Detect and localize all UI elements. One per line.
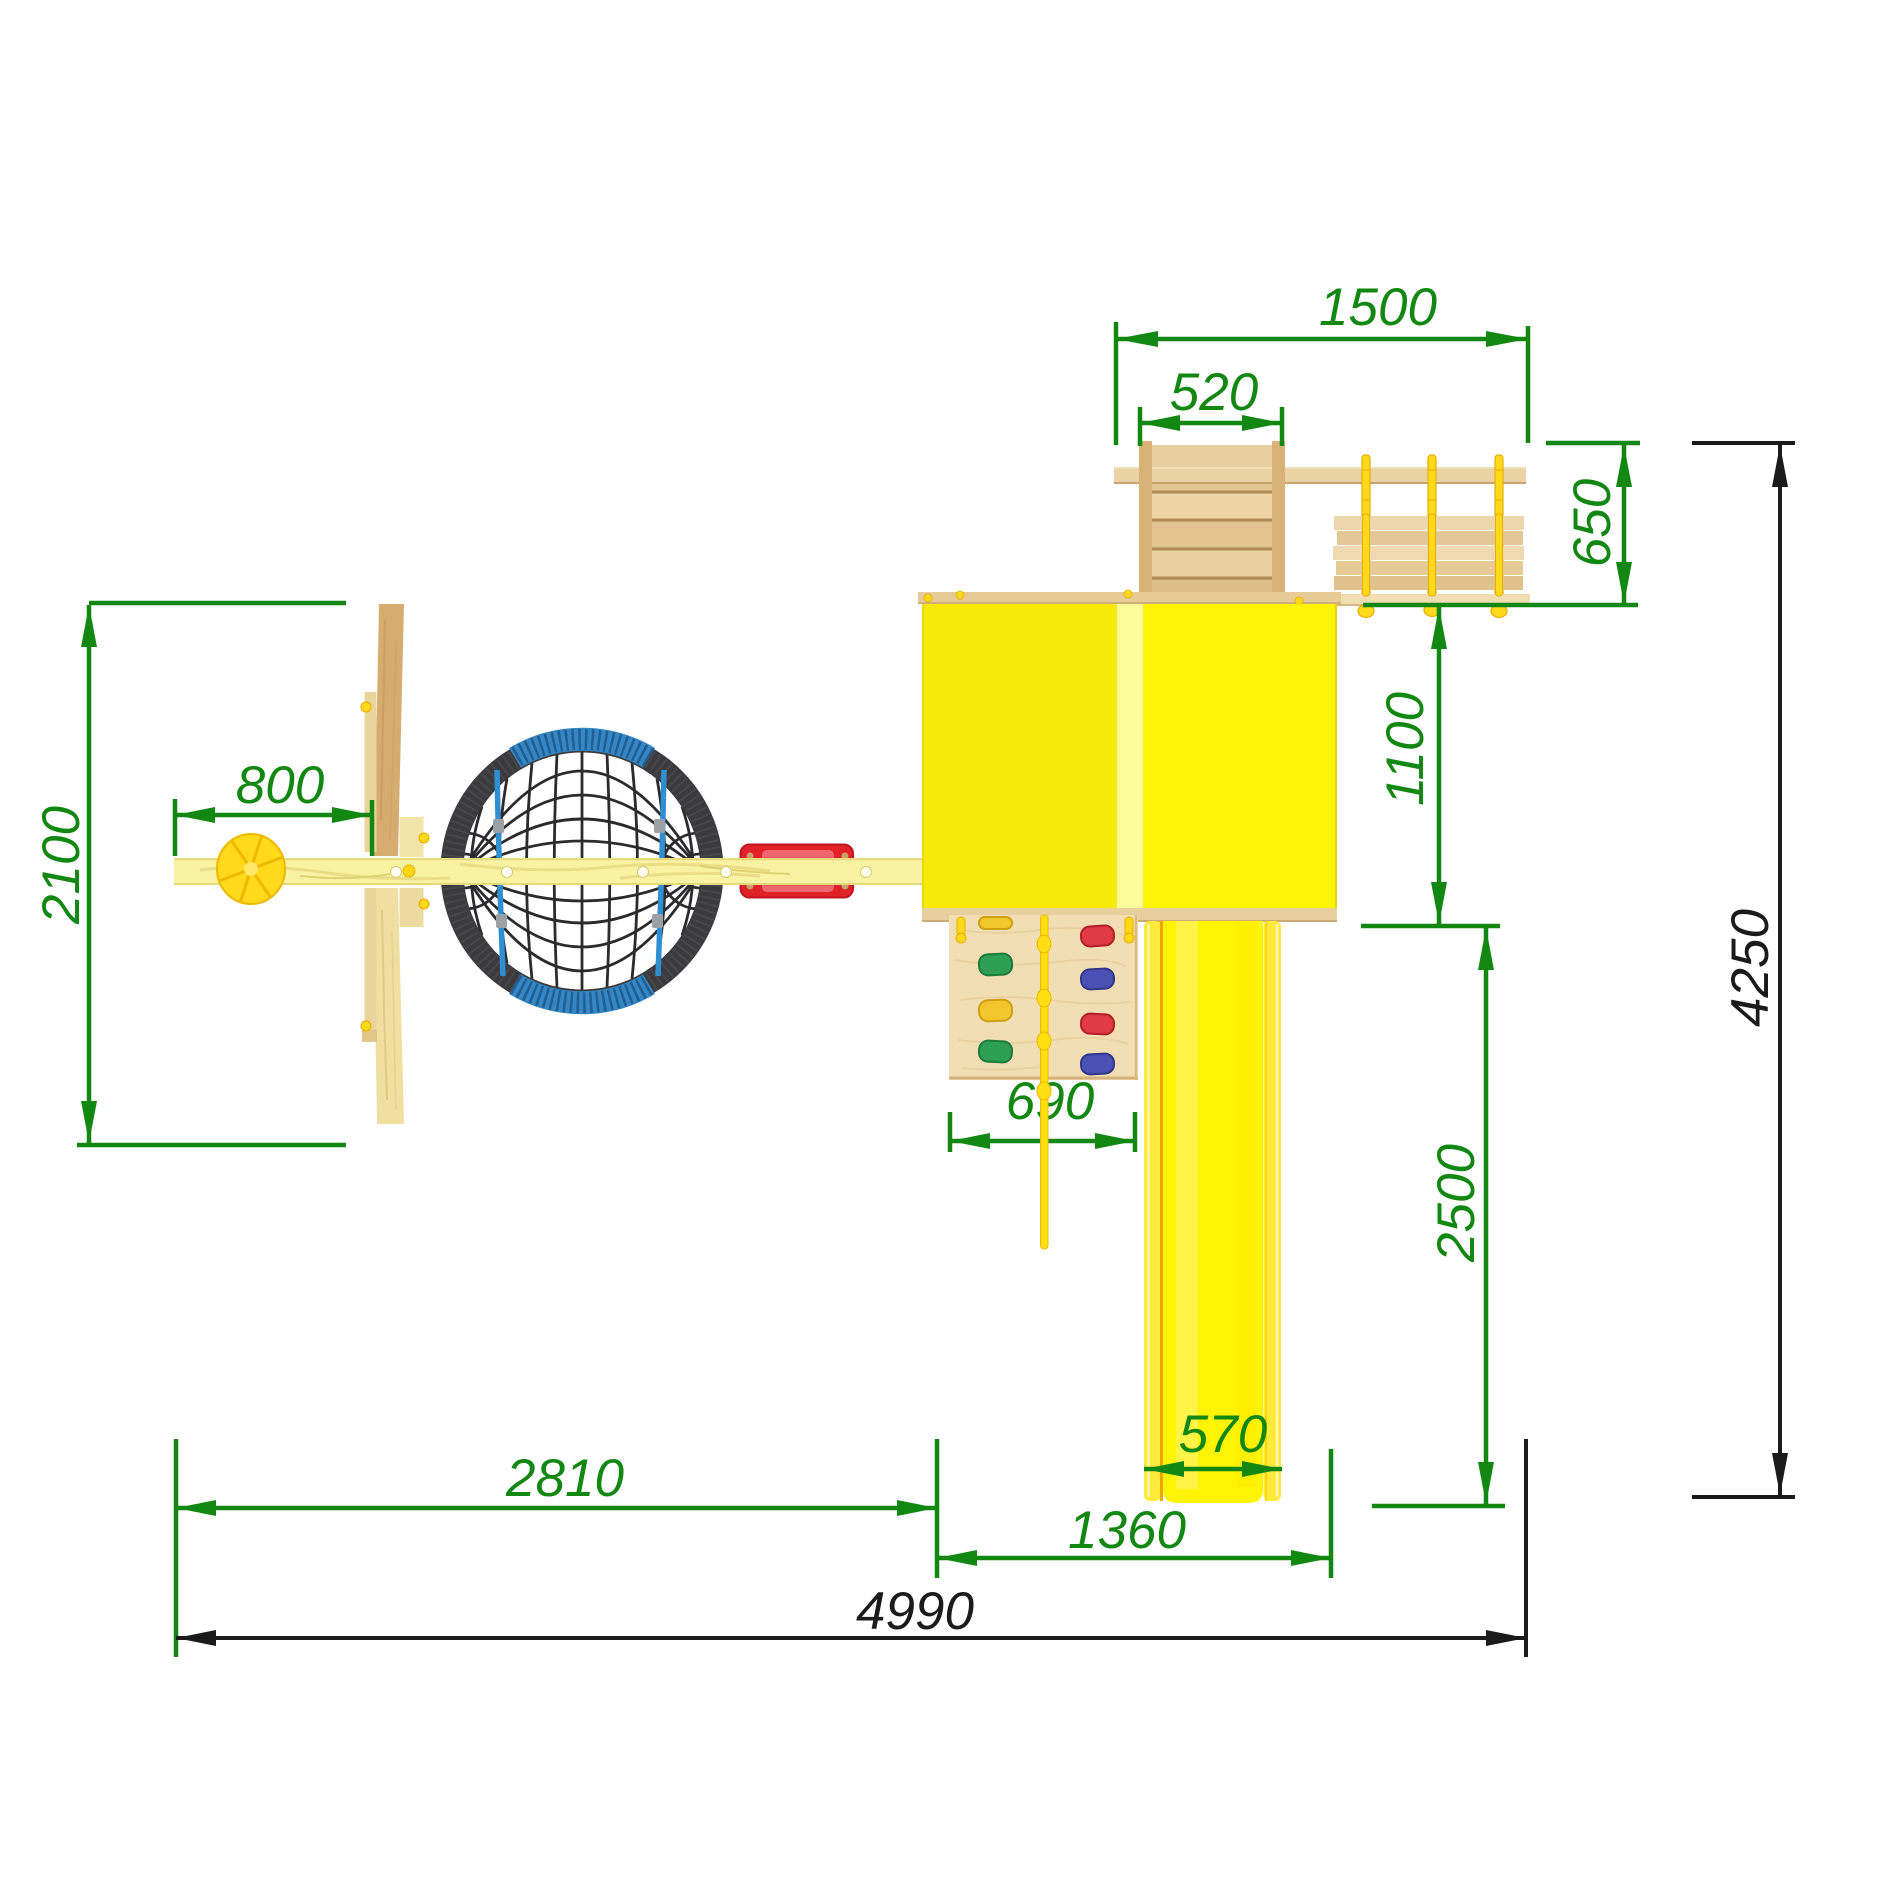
svg-text:2100: 2100 [32, 806, 91, 925]
svg-text:4990: 4990 [856, 1582, 974, 1641]
svg-text:4250: 4250 [1721, 909, 1780, 1027]
svg-text:520: 520 [1170, 363, 1259, 422]
svg-text:1500: 1500 [1319, 278, 1437, 337]
svg-text:800: 800 [236, 756, 325, 815]
svg-text:690: 690 [1006, 1072, 1095, 1131]
svg-text:650: 650 [1563, 478, 1622, 567]
svg-text:2500: 2500 [1427, 1144, 1486, 1263]
svg-text:570: 570 [1179, 1405, 1268, 1464]
svg-text:2810: 2810 [505, 1449, 624, 1508]
svg-text:1360: 1360 [1068, 1501, 1186, 1560]
svg-text:1100: 1100 [1376, 691, 1435, 805]
